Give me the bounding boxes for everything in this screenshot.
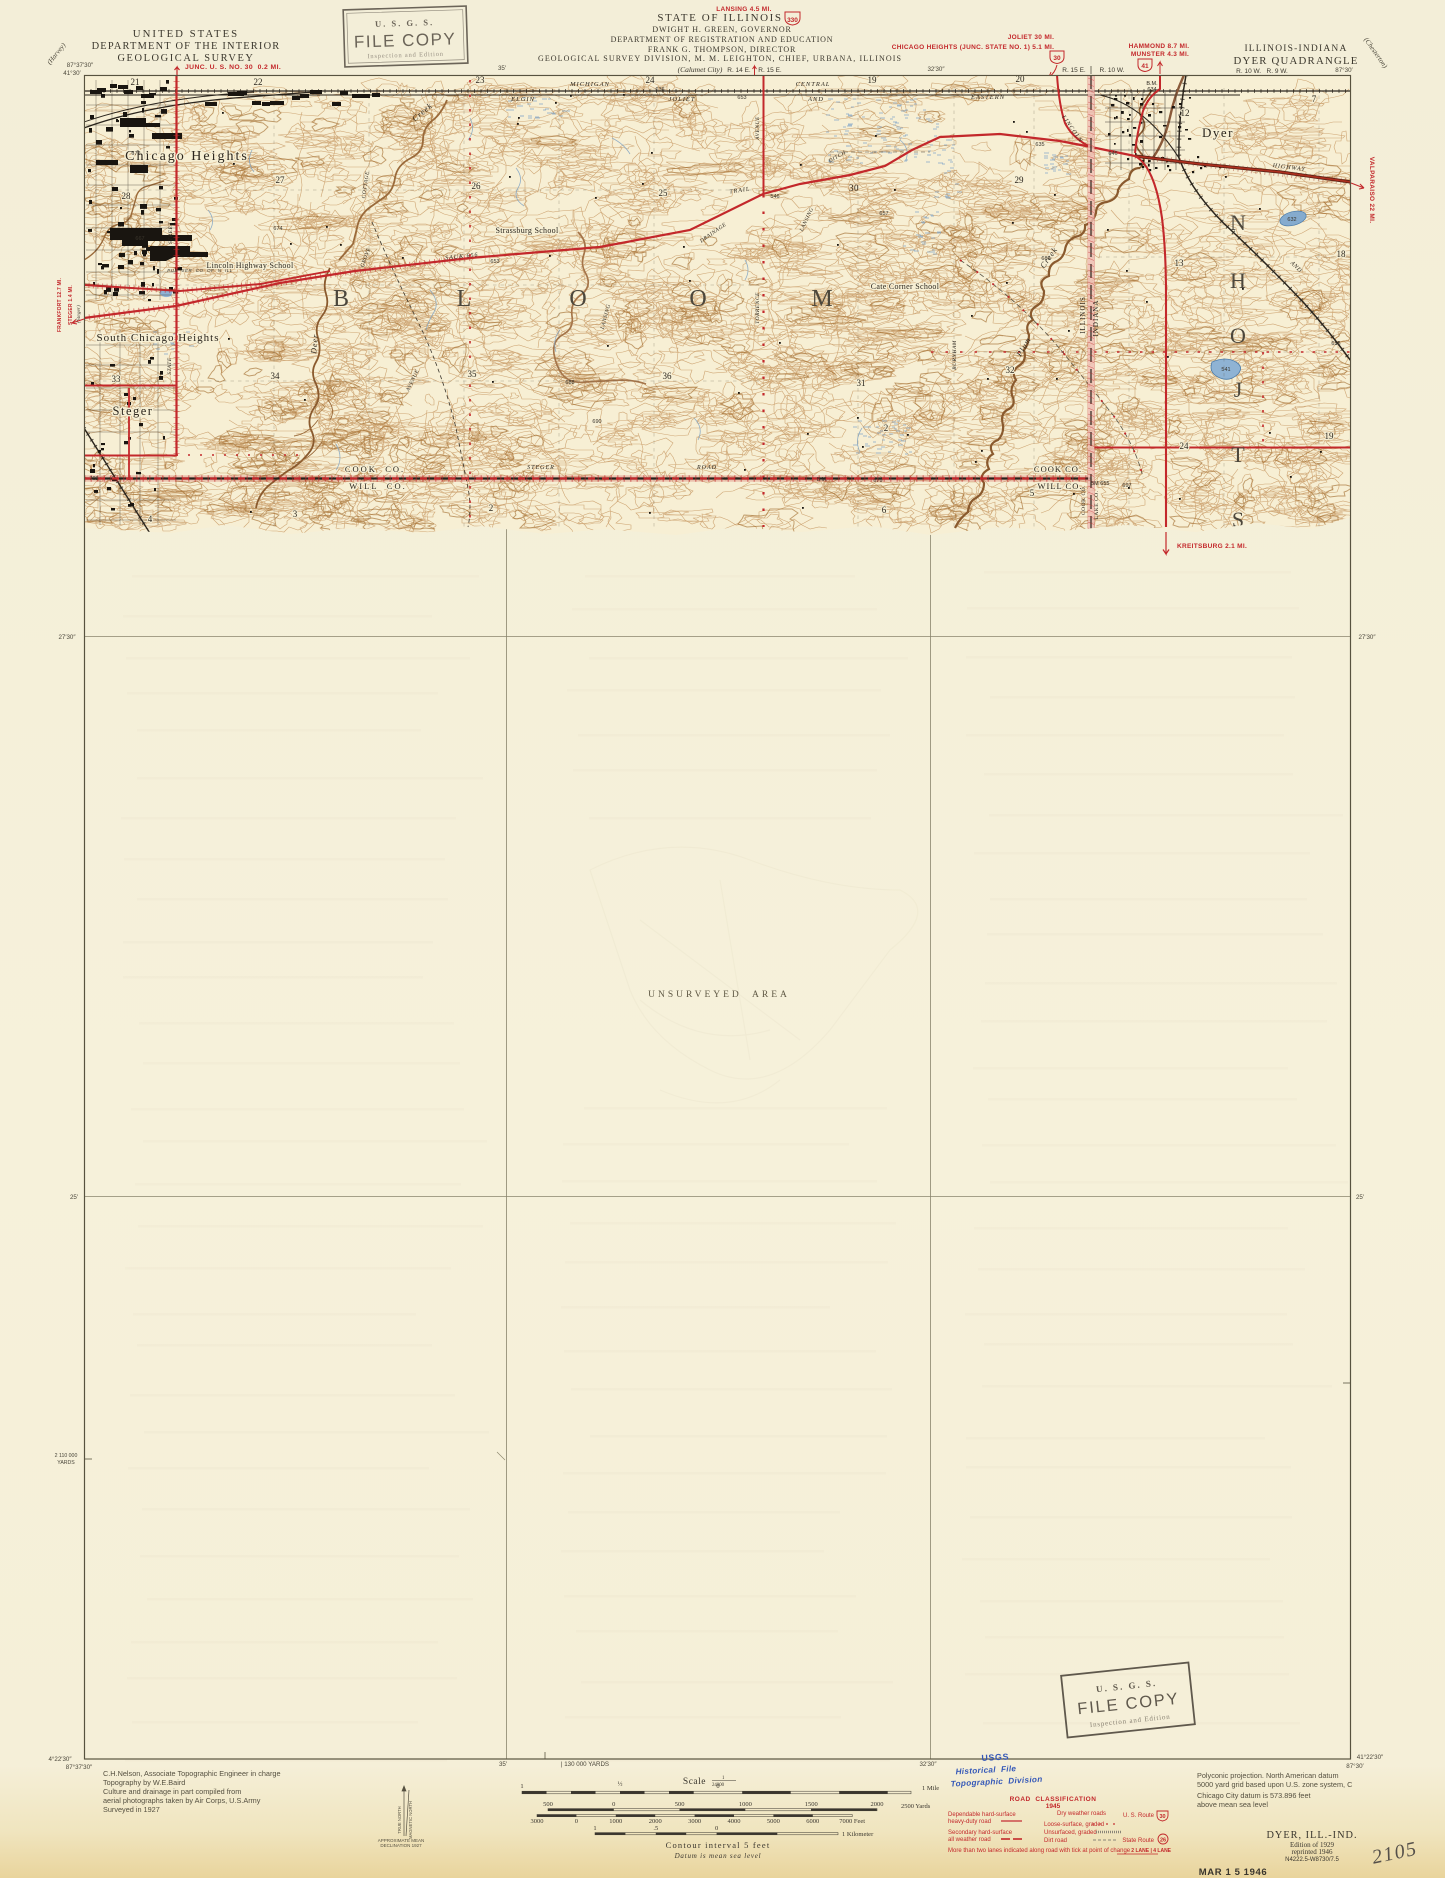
- svg-text:HAMMOND 8.7 MI.: HAMMOND 8.7 MI.: [1129, 43, 1190, 50]
- svg-text:7000 Feet: 7000 Feet: [839, 1818, 865, 1825]
- svg-text:L: L: [457, 286, 472, 312]
- svg-text:DYER, ILL.-IND.: DYER, ILL.-IND.: [1266, 1830, 1357, 1841]
- svg-text:697: 697: [1122, 483, 1131, 489]
- svg-text:5: 5: [1030, 488, 1035, 498]
- svg-text:VALPARAISO 22 MI.: VALPARAISO 22 MI.: [1368, 157, 1375, 224]
- svg-text:CHICAGO HEIGHTS (JUNC. STATE N: CHICAGO HEIGHTS (JUNC. STATE NO. 1) 5.1 …: [892, 44, 1055, 51]
- svg-text:U. S. Route: U. S. Route: [1123, 1813, 1155, 1819]
- svg-text:87°37′30″: 87°37′30″: [67, 62, 94, 69]
- svg-text:COOK CO.: COOK CO.: [1081, 485, 1087, 515]
- svg-text:Unsurfaced, graded: Unsurfaced, graded: [1044, 1830, 1097, 1836]
- svg-text:AVENUE: AVENUE: [755, 116, 761, 141]
- svg-text:19: 19: [868, 75, 878, 85]
- svg-text:More than two lanes indicated: More than two lanes indicated along road…: [948, 1848, 1131, 1854]
- svg-text:H: H: [1230, 268, 1246, 293]
- svg-text:690: 690: [592, 419, 601, 425]
- svg-text:COOK CO.: COOK CO.: [1034, 464, 1082, 474]
- svg-text:Cate Corner School: Cate Corner School: [871, 282, 940, 291]
- svg-text:32: 32: [1006, 365, 1015, 375]
- svg-text:3000: 3000: [688, 1818, 701, 1825]
- svg-text:3000: 3000: [531, 1818, 544, 1825]
- svg-text:AND: AND: [807, 96, 824, 103]
- svg-text:ROAD CLASSIFICATION: ROAD CLASSIFICATION: [1010, 1796, 1097, 1803]
- svg-text:500: 500: [675, 1801, 685, 1808]
- svg-text:653: 653: [737, 95, 746, 101]
- svg-text:0: 0: [716, 1783, 719, 1790]
- svg-text:1 Kilometer: 1 Kilometer: [842, 1831, 874, 1838]
- svg-text:2000: 2000: [649, 1818, 662, 1825]
- svg-text:679: 679: [873, 478, 882, 484]
- svg-text:36: 36: [663, 371, 673, 381]
- svg-text:1: 1: [593, 1825, 596, 1832]
- svg-text:DEPARTMENT OF REGISTRATION AND: DEPARTMENT OF REGISTRATION AND EDUCATION: [611, 35, 834, 44]
- svg-text:DEPARTMENT OF THE INTERIOR: DEPARTMENT OF THE INTERIOR: [92, 41, 281, 52]
- svg-text:Secondary hard-surface: Secondary hard-surface: [948, 1830, 1013, 1836]
- svg-text:MAR 1 5 1946: MAR 1 5 1946: [1199, 1867, 1267, 1878]
- svg-text:634: 634: [1147, 87, 1156, 93]
- svg-text:MUNSTER 4.3 MI.: MUNSTER 4.3 MI.: [1131, 51, 1189, 58]
- svg-text:6: 6: [882, 505, 887, 515]
- svg-text:34: 34: [271, 371, 281, 381]
- svg-text:BURNHAM: BURNHAM: [952, 340, 958, 370]
- svg-text:Steger: Steger: [113, 404, 154, 418]
- svg-text:41°30′: 41°30′: [63, 70, 81, 77]
- svg-text:2000: 2000: [871, 1801, 884, 1808]
- svg-text:41°22′30″: 41°22′30″: [1357, 1754, 1384, 1761]
- svg-text:1000: 1000: [739, 1801, 752, 1808]
- svg-text:330: 330: [787, 17, 798, 24]
- svg-text:M: M: [811, 286, 832, 312]
- svg-text:TORRENCE: TORRENCE: [755, 292, 761, 324]
- svg-text:87°30′: 87°30′: [1335, 67, 1353, 74]
- svg-text:JUNC. U. S. NO. 30 0.2 MI.: JUNC. U. S. NO. 30 0.2 MI.: [185, 64, 281, 71]
- svg-text:R. 10 W. R. 9 W.: R. 10 W. R. 9 W.: [1236, 68, 1288, 75]
- svg-text:DWIGHT H. GREEN, GOVERNOR: DWIGHT H. GREEN, GOVERNOR: [652, 25, 791, 34]
- svg-text:½: ½: [618, 1781, 623, 1788]
- svg-text:KREITSBURG 2.1 MI.: KREITSBURG 2.1 MI.: [1177, 543, 1247, 550]
- svg-text:24: 24: [646, 75, 656, 85]
- svg-text:Contour interval 5 feet: Contour interval 5 feet: [666, 1840, 771, 1850]
- svg-text:5000: 5000: [767, 1818, 780, 1825]
- svg-text:Chicago City datum is 573.896: Chicago City datum is 573.896 feet: [1197, 1791, 1311, 1800]
- svg-text:27′30″: 27′30″: [58, 634, 76, 641]
- svg-text:500: 500: [543, 1801, 553, 1808]
- svg-text:T: T: [1231, 442, 1245, 467]
- svg-text:25′: 25′: [70, 1194, 79, 1201]
- svg-text:B.M.: B.M.: [817, 477, 827, 483]
- svg-text:33: 33: [112, 374, 122, 384]
- svg-text:19: 19: [1325, 431, 1335, 441]
- svg-text:4°22′30″: 4°22′30″: [48, 1756, 72, 1763]
- svg-text:ROAD: ROAD: [696, 465, 717, 471]
- svg-text:23: 23: [476, 75, 486, 85]
- svg-text:635: 635: [1035, 142, 1044, 148]
- svg-text:25: 25: [659, 188, 669, 198]
- svg-text:Dirt road: Dirt road: [1044, 1838, 1067, 1844]
- svg-text:(Calumet City): (Calumet City): [678, 65, 723, 74]
- svg-text:653: 653: [490, 259, 499, 265]
- svg-text:0: 0: [575, 1818, 578, 1825]
- svg-text:688: 688: [565, 380, 574, 386]
- svg-text:35′: 35′: [499, 1761, 508, 1768]
- svg-text:N4222.5-W8730/7.5: N4222.5-W8730/7.5: [1285, 1857, 1339, 1863]
- svg-text:672: 672: [131, 151, 140, 157]
- svg-text:18: 18: [1337, 249, 1347, 259]
- svg-text:Dry weather roads: Dry weather roads: [1057, 1811, 1106, 1817]
- svg-text:35′: 35′: [498, 65, 507, 72]
- svg-text:3: 3: [293, 509, 298, 519]
- svg-text:INDIANA: INDIANA: [1092, 300, 1100, 337]
- svg-text:R. 14 E.: R. 14 E.: [727, 67, 751, 74]
- svg-text:12: 12: [1181, 108, 1190, 118]
- svg-text:STATE OF ILLINOIS: STATE OF ILLINOIS: [657, 12, 782, 24]
- svg-text:LANSING 4.5 MI.: LANSING 4.5 MI.: [716, 6, 771, 13]
- svg-text:4000: 4000: [728, 1818, 741, 1825]
- svg-text:O: O: [1230, 323, 1246, 348]
- svg-text:Datum is mean sea level: Datum is mean sea level: [674, 1852, 762, 1860]
- svg-text:BM 655: BM 655: [1091, 481, 1110, 487]
- svg-text:R. 15 E.: R. 15 E.: [758, 67, 782, 74]
- svg-text:STATE: STATE: [167, 357, 173, 375]
- svg-text:2 110 000: 2 110 000: [55, 1453, 78, 1459]
- svg-text:STEGER: STEGER: [527, 465, 555, 471]
- svg-text:JOLIET: JOLIET: [669, 96, 696, 103]
- svg-text:29: 29: [1015, 175, 1025, 185]
- svg-text:EASTERN: EASTERN: [970, 94, 1005, 101]
- svg-text:ELGIN: ELGIN: [510, 96, 535, 103]
- svg-text:31: 31: [857, 378, 866, 388]
- svg-text:7: 7: [1312, 94, 1317, 104]
- svg-text:MICHIGAN: MICHIGAN: [569, 81, 610, 88]
- svg-text:N: N: [1230, 210, 1246, 235]
- svg-text:35: 35: [468, 369, 478, 379]
- svg-text:2 LANE | 4 LANE: 2 LANE | 4 LANE: [1116, 1848, 1172, 1854]
- svg-text:U. S. G. S.: U. S. G. S.: [375, 17, 434, 29]
- svg-text:C.H.Nelson, Associate Topograp: C.H.Nelson, Associate Topographic Engine…: [103, 1769, 281, 1778]
- svg-text:87°37′30″: 87°37′30″: [66, 1764, 93, 1771]
- svg-text:4: 4: [148, 514, 153, 524]
- svg-text:13: 13: [1175, 258, 1185, 268]
- svg-text:1500: 1500: [805, 1801, 818, 1808]
- svg-text:1: 1: [520, 1783, 523, 1790]
- svg-text:O: O: [569, 286, 586, 312]
- svg-text:656: 656: [1331, 341, 1340, 347]
- svg-text:21: 21: [131, 77, 140, 87]
- svg-text:MAGNETIC NORTH: MAGNETIC NORTH: [408, 1801, 413, 1839]
- svg-text:DYER QUADRANGLE: DYER QUADRANGLE: [1233, 55, 1358, 67]
- svg-text:GEOLOGICAL SURVEY: GEOLOGICAL SURVEY: [117, 53, 254, 64]
- svg-text:41: 41: [1141, 63, 1149, 70]
- svg-text:WILL CO.: WILL CO.: [349, 481, 406, 491]
- svg-text:all weather road: all weather road: [948, 1837, 991, 1843]
- svg-text:CENTRAL: CENTRAL: [796, 81, 831, 88]
- svg-text:Deer: Deer: [309, 333, 320, 355]
- svg-text:87°30′: 87°30′: [1346, 1763, 1364, 1770]
- svg-text:32′30″: 32′30″: [919, 1761, 937, 1768]
- svg-text:674: 674: [273, 226, 282, 232]
- svg-text:30: 30: [849, 183, 859, 193]
- svg-text:Dyer: Dyer: [1202, 125, 1234, 140]
- svg-text:541: 541: [1221, 367, 1230, 373]
- svg-text:Polyconic projection. North Am: Polyconic projection. North American dat…: [1197, 1771, 1339, 1780]
- svg-text:0: 0: [612, 1801, 615, 1808]
- svg-text:Chicago Heights: Chicago Heights: [125, 149, 249, 164]
- svg-text:FILE COPY: FILE COPY: [354, 29, 457, 51]
- svg-text:1000: 1000: [609, 1818, 622, 1825]
- svg-text:UNSURVEYED AREA: UNSURVEYED AREA: [648, 990, 790, 1000]
- svg-text:Culture and drainage in part c: Culture and drainage in part compiled fr…: [103, 1787, 241, 1796]
- svg-text:Surveyed in 1927: Surveyed in 1927: [103, 1805, 160, 1814]
- svg-text:R. 15 E.: R. 15 E.: [1062, 67, 1086, 74]
- svg-text:1945: 1945: [1046, 1803, 1061, 1810]
- svg-text:2: 2: [489, 503, 494, 513]
- svg-text:ILLINOIS: ILLINOIS: [1079, 296, 1087, 334]
- svg-text:636: 636: [655, 87, 664, 93]
- svg-text:JOLIET 30 MI.: JOLIET 30 MI.: [1008, 34, 1055, 41]
- svg-text:Topography by W.E.Baird: Topography by W.E.Baird: [103, 1778, 185, 1787]
- svg-text:UNITED STATES: UNITED STATES: [133, 28, 239, 40]
- svg-text:2500 Yards: 2500 Yards: [901, 1803, 931, 1810]
- svg-text:STEGER 1.4 MI.: STEGER 1.4 MI.: [68, 285, 74, 325]
- svg-text:South Chicago Heights: South Chicago Heights: [96, 332, 219, 344]
- svg-text:O: O: [689, 286, 706, 312]
- svg-text:26: 26: [1160, 1838, 1166, 1844]
- svg-text:.5: .5: [653, 1825, 658, 1832]
- svg-text:657: 657: [879, 211, 888, 217]
- svg-text:646: 646: [1108, 151, 1117, 157]
- svg-text:680: 680: [1041, 256, 1050, 262]
- svg-text:32′30″: 32′30″: [927, 66, 945, 73]
- svg-text:R. 10 W.: R. 10 W.: [1100, 67, 1125, 74]
- svg-text:reprinted 1946: reprinted 1946: [1291, 1848, 1333, 1856]
- svg-text:YARDS: YARDS: [57, 1460, 75, 1466]
- svg-text:0: 0: [715, 1825, 718, 1832]
- svg-text:| 130 000 YARDS: | 130 000 YARDS: [561, 1761, 609, 1768]
- svg-text:aerial photographs taken by Ai: aerial photographs taken by Air Corps, U…: [103, 1796, 261, 1805]
- svg-text:30: 30: [1053, 55, 1061, 62]
- svg-text:GEOLOGICAL SURVEY DIVISION, M.: GEOLOGICAL SURVEY DIVISION, M. M. LEIGHT…: [538, 54, 902, 63]
- svg-text:546: 546: [770, 194, 779, 200]
- svg-text:Dependable hard-surface: Dependable hard-surface: [948, 1812, 1016, 1818]
- svg-text:Strassburg School: Strassburg School: [496, 226, 559, 235]
- svg-text:FRANK G. THOMPSON, DIRECTOR: FRANK G. THOMPSON, DIRECTOR: [648, 45, 796, 54]
- svg-text:State Route: State Route: [1122, 1838, 1154, 1844]
- svg-text:667: 667: [135, 236, 144, 242]
- svg-text:J: J: [1234, 377, 1243, 402]
- svg-text:USGS: USGS: [981, 1752, 1009, 1763]
- svg-text:5000 yard grid based upon U.S.: 5000 yard grid based upon U.S. zone syst…: [1197, 1780, 1352, 1789]
- svg-text:25′: 25′: [1356, 1194, 1365, 1201]
- svg-text:PUB SER CO OF N ILL: PUB SER CO OF N ILL: [167, 268, 232, 273]
- svg-text:27: 27: [276, 175, 286, 185]
- svg-text:Scale: Scale: [683, 1777, 706, 1787]
- svg-text:B: B: [333, 286, 349, 312]
- svg-text:22: 22: [254, 77, 263, 87]
- svg-text:28: 28: [122, 191, 132, 201]
- svg-text:heavy-duty road: heavy-duty road: [948, 1819, 991, 1825]
- svg-text:DECLINATION 1927: DECLINATION 1927: [380, 1843, 422, 1848]
- svg-text:TRUE NORTH: TRUE NORTH: [397, 1806, 402, 1833]
- svg-text:Loose-surface, graded: Loose-surface, graded: [1044, 1822, 1104, 1828]
- svg-text:ILLINOIS-INDIANA: ILLINOIS-INDIANA: [1244, 44, 1347, 54]
- svg-text:COOK CO.: COOK CO.: [345, 464, 405, 474]
- svg-text:632: 632: [1287, 217, 1296, 223]
- svg-text:FRANKFORT 12.7 MI.: FRANKFORT 12.7 MI.: [57, 278, 63, 333]
- svg-text:708: 708: [89, 476, 98, 482]
- svg-text:1 Mile: 1 Mile: [922, 1785, 939, 1792]
- svg-text:27′30″: 27′30″: [1358, 634, 1376, 641]
- svg-text:30: 30: [1159, 1814, 1165, 1820]
- svg-text:2: 2: [884, 423, 889, 433]
- svg-text:26: 26: [472, 181, 482, 191]
- svg-text:6000: 6000: [806, 1818, 819, 1825]
- svg-text:24: 24: [1180, 441, 1190, 451]
- svg-text:STREET: STREET: [168, 222, 174, 244]
- svg-text:above mean sea level: above mean sea level: [1197, 1800, 1268, 1809]
- svg-text:LAKE CO.: LAKE CO.: [1094, 490, 1100, 519]
- svg-text:WILL CO.: WILL CO.: [1038, 481, 1083, 491]
